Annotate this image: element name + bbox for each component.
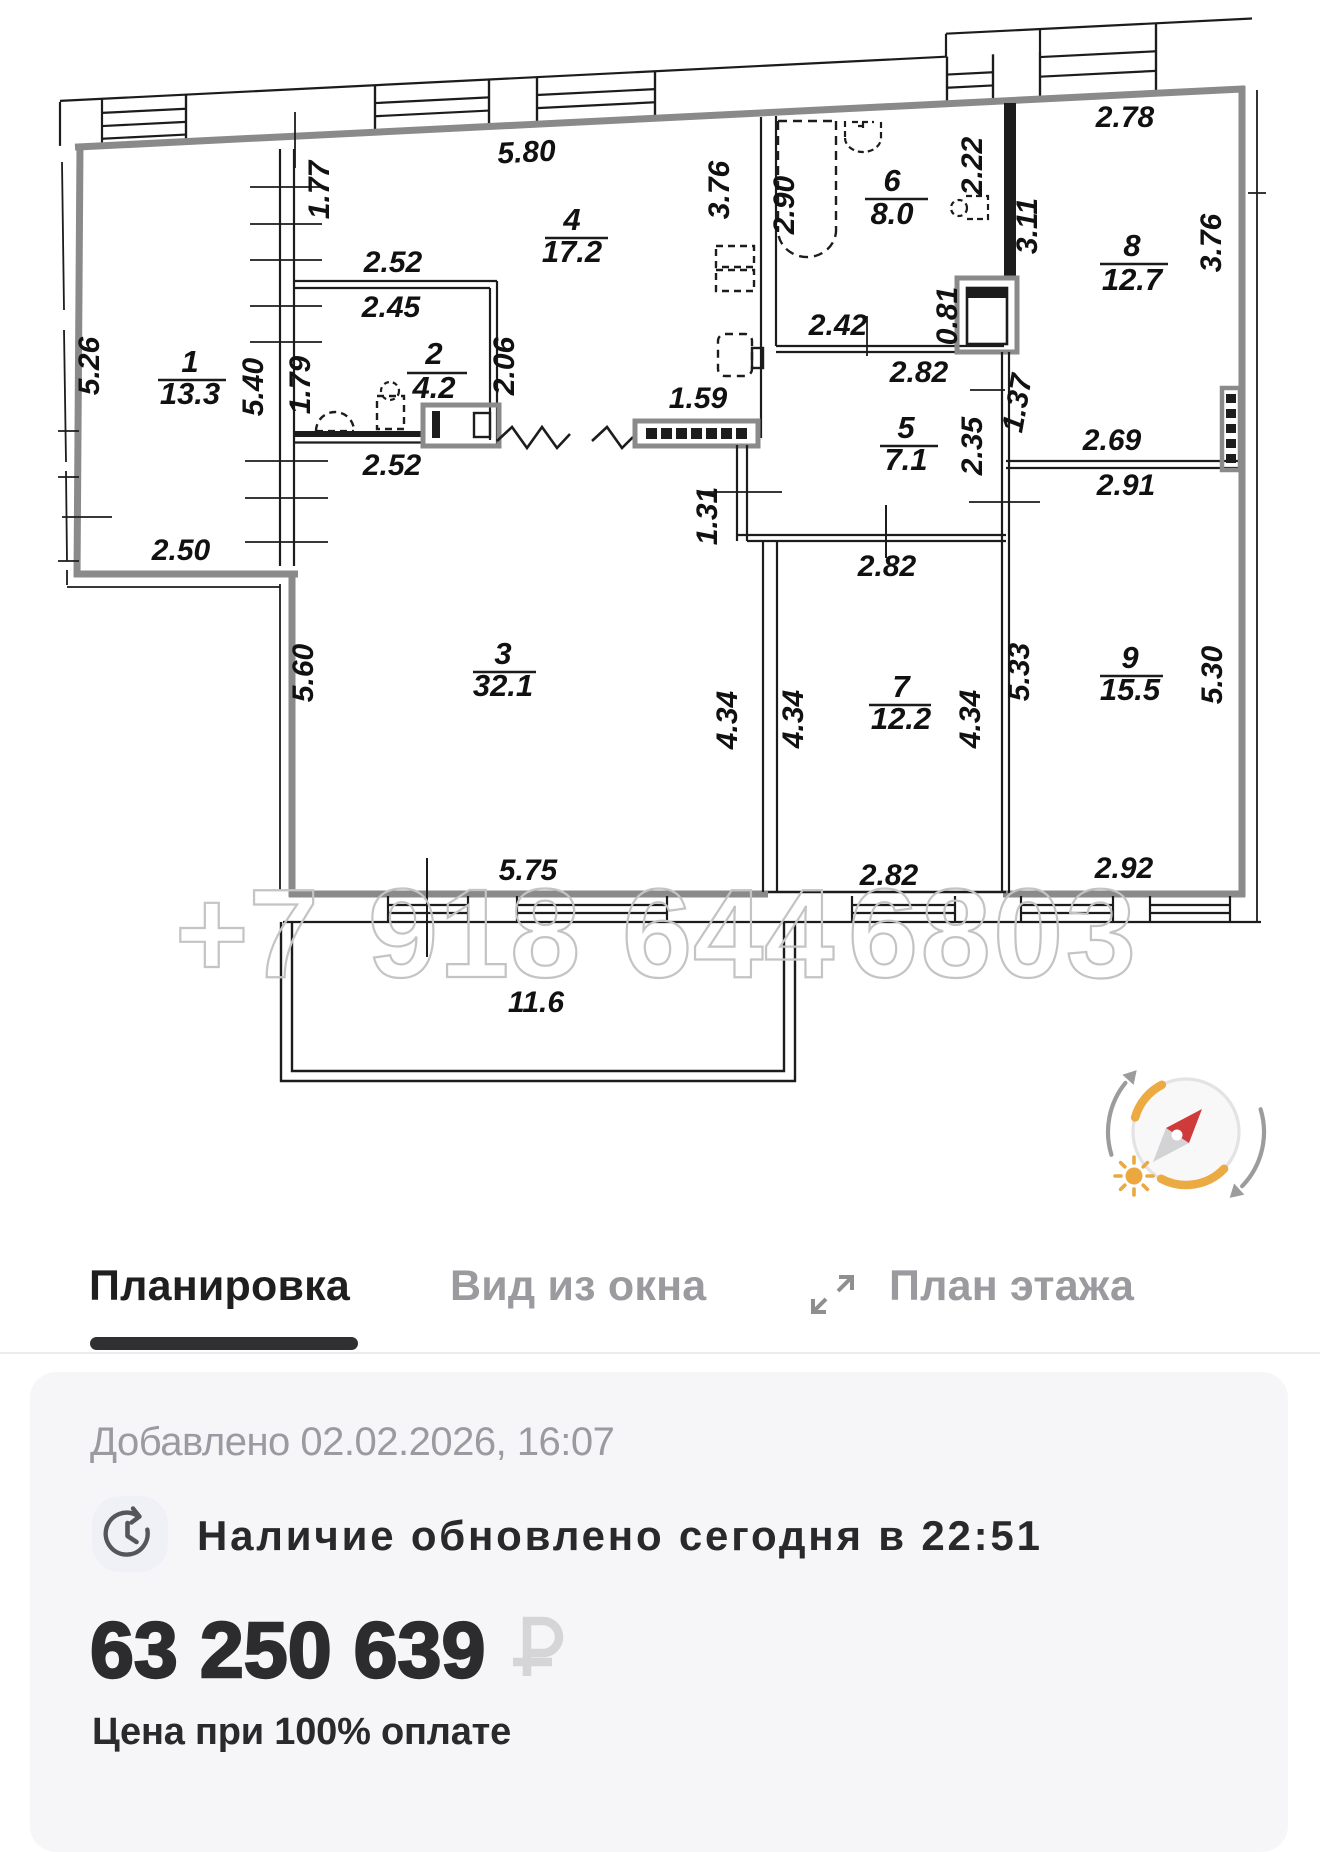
svg-text:8.0: 8.0 bbox=[870, 196, 913, 231]
svg-text:2.45: 2.45 bbox=[361, 291, 422, 324]
svg-text:3.76: 3.76 bbox=[703, 160, 736, 219]
svg-text:1: 1 bbox=[181, 344, 198, 379]
svg-text:5.40: 5.40 bbox=[237, 357, 270, 416]
svg-text:4.2: 4.2 bbox=[411, 370, 455, 405]
svg-text:4.34: 4.34 bbox=[711, 690, 744, 750]
svg-text:2.22: 2.22 bbox=[956, 136, 989, 196]
svg-text:1.59: 1.59 bbox=[669, 382, 728, 415]
svg-text:3.76: 3.76 bbox=[1195, 213, 1228, 272]
svg-text:2.50: 2.50 bbox=[151, 534, 211, 567]
svg-text:12.7: 12.7 bbox=[1102, 262, 1164, 297]
svg-text:4: 4 bbox=[562, 202, 580, 237]
svg-text:918: 918 bbox=[368, 863, 581, 1004]
svg-text:5.30: 5.30 bbox=[1196, 645, 1229, 704]
svg-text:2.90: 2.90 bbox=[768, 175, 801, 235]
svg-text:5.80: 5.80 bbox=[496, 134, 556, 170]
svg-text:0.81: 0.81 bbox=[931, 287, 964, 345]
svg-text:3.11: 3.11 bbox=[1011, 198, 1044, 254]
svg-text:2.69: 2.69 bbox=[1082, 424, 1142, 457]
svg-text:5.60: 5.60 bbox=[287, 643, 320, 702]
svg-text:2.78: 2.78 bbox=[1095, 101, 1155, 134]
svg-text:5.26: 5.26 bbox=[73, 336, 106, 395]
svg-text:13.3: 13.3 bbox=[160, 376, 220, 411]
svg-text:2.82: 2.82 bbox=[857, 550, 917, 583]
svg-text:2.06: 2.06 bbox=[488, 336, 521, 396]
svg-text:2.42: 2.42 bbox=[808, 309, 868, 342]
svg-text:1.77: 1.77 bbox=[303, 159, 336, 219]
svg-text:5: 5 bbox=[897, 410, 915, 445]
svg-text:1.31: 1.31 bbox=[691, 487, 724, 545]
svg-text:2.35: 2.35 bbox=[956, 415, 989, 476]
svg-text:8: 8 bbox=[1123, 228, 1141, 263]
svg-text:644: 644 bbox=[622, 863, 835, 1004]
svg-text:6: 6 bbox=[883, 163, 901, 198]
svg-text:6803: 6803 bbox=[848, 863, 1138, 1004]
svg-text:2.52: 2.52 bbox=[363, 246, 423, 279]
svg-text:7.1: 7.1 bbox=[884, 442, 927, 477]
svg-text:5.33: 5.33 bbox=[1003, 642, 1036, 701]
svg-text:4.34: 4.34 bbox=[954, 689, 987, 749]
svg-text:4.34: 4.34 bbox=[777, 689, 810, 749]
svg-text:32.1: 32.1 bbox=[473, 668, 533, 703]
svg-text:2.52: 2.52 bbox=[362, 449, 422, 482]
svg-text:7: 7 bbox=[892, 669, 911, 704]
svg-text:9: 9 bbox=[1121, 640, 1139, 675]
svg-text:1.79: 1.79 bbox=[284, 355, 317, 414]
svg-text:15.5: 15.5 bbox=[1100, 672, 1161, 707]
svg-text:3: 3 bbox=[494, 636, 511, 671]
svg-text:2: 2 bbox=[424, 336, 442, 371]
svg-text:2.82: 2.82 bbox=[889, 356, 949, 389]
svg-text:17.2: 17.2 bbox=[542, 234, 602, 269]
svg-text:2.91: 2.91 bbox=[1096, 469, 1155, 502]
svg-text:12.2: 12.2 bbox=[871, 701, 931, 736]
svg-text:+7: +7 bbox=[175, 863, 319, 1004]
